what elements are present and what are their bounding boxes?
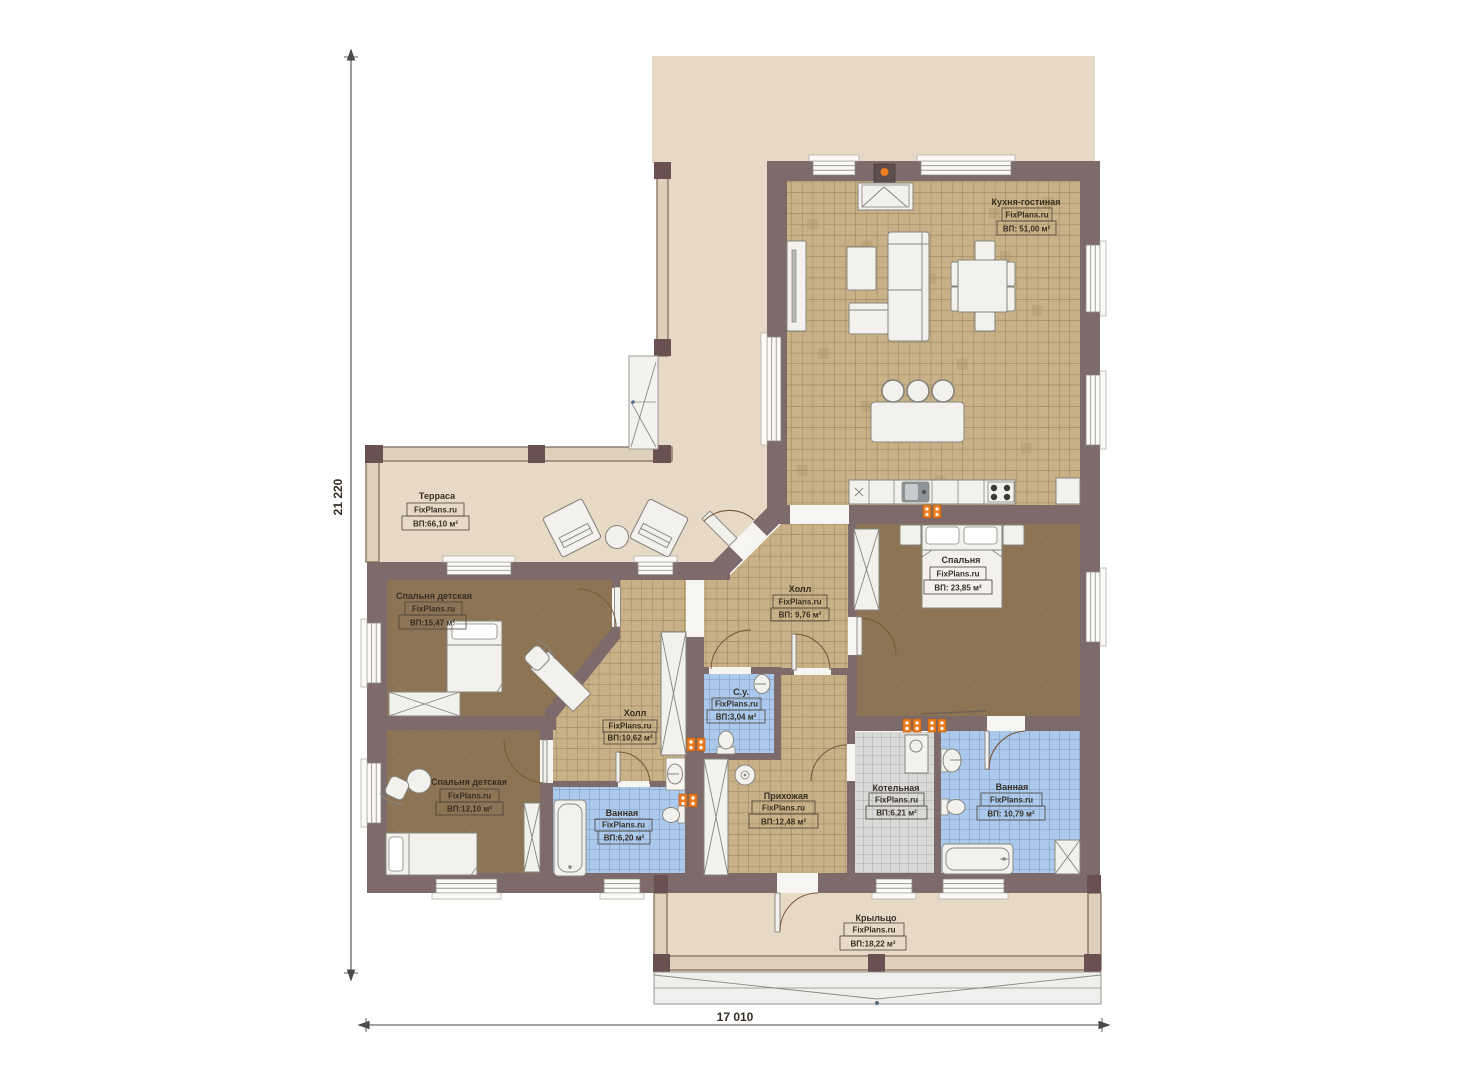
svg-text:Ванная: Ванная [606, 808, 639, 818]
svg-text:FixPlans.ru: FixPlans.ru [778, 598, 821, 607]
svg-text:Котельная: Котельная [872, 783, 919, 793]
svg-text:FixPlans.ru: FixPlans.ru [875, 796, 918, 805]
svg-text:ВП:6,21 м²: ВП:6,21 м² [876, 809, 917, 818]
svg-text:FixPlans.ru: FixPlans.ru [762, 804, 805, 813]
svg-text:ВП:15,47 м²: ВП:15,47 м² [410, 619, 455, 628]
svg-text:FixPlans.ru: FixPlans.ru [852, 926, 895, 935]
svg-text:Кухня-гостиная: Кухня-гостиная [992, 197, 1061, 207]
svg-text:Холл: Холл [789, 584, 812, 594]
svg-text:ВП:10,62 м²: ВП:10,62 м² [607, 734, 652, 743]
svg-text:ВП: 51,00 м²: ВП: 51,00 м² [1003, 225, 1051, 234]
svg-text:Холл: Холл [624, 708, 647, 718]
svg-text:ВП:3,04 м²: ВП:3,04 м² [716, 713, 757, 722]
svg-text:FixPlans.ru: FixPlans.ru [412, 605, 455, 614]
svg-text:Прихожая: Прихожая [764, 791, 808, 801]
svg-text:ВП:12,48 м²: ВП:12,48 м² [761, 818, 806, 827]
svg-text:Спальня: Спальня [942, 555, 981, 565]
svg-text:FixPlans.ru: FixPlans.ru [448, 792, 491, 801]
svg-text:FixPlans.ru: FixPlans.ru [936, 570, 979, 579]
svg-text:С.у.: С.у. [733, 687, 749, 697]
svg-text:FixPlans.ru: FixPlans.ru [414, 506, 457, 515]
svg-text:ВП:12,10 м²: ВП:12,10 м² [447, 805, 492, 814]
svg-text:ВП: 9,76 м²: ВП: 9,76 м² [779, 611, 822, 620]
svg-text:ВП:18,22 м²: ВП:18,22 м² [850, 940, 895, 949]
svg-text:FixPlans.ru: FixPlans.ru [1005, 211, 1048, 220]
svg-text:ВП: 23,85 м²: ВП: 23,85 м² [934, 584, 982, 593]
svg-text:Спальня детская: Спальня детская [431, 777, 507, 787]
svg-text:Крыльцо: Крыльцо [856, 913, 897, 923]
svg-text:FixPlans.ru: FixPlans.ru [602, 821, 645, 830]
svg-text:FixPlans.ru: FixPlans.ru [608, 722, 651, 731]
svg-text:Терраса: Терраса [419, 491, 456, 501]
svg-text:Спальня детская: Спальня детская [396, 591, 472, 601]
svg-text:17 010: 17 010 [717, 1010, 754, 1024]
svg-text:ВП:66,10 м²: ВП:66,10 м² [413, 520, 458, 529]
svg-text:21 220: 21 220 [331, 478, 345, 515]
svg-text:Ванная: Ванная [996, 782, 1029, 792]
svg-text:ВП: 10,79 м²: ВП: 10,79 м² [987, 810, 1035, 819]
svg-text:FixPlans.ru: FixPlans.ru [990, 796, 1033, 805]
svg-text:ВП:6,20 м²: ВП:6,20 м² [604, 834, 645, 843]
svg-text:FixPlans.ru: FixPlans.ru [715, 700, 758, 709]
